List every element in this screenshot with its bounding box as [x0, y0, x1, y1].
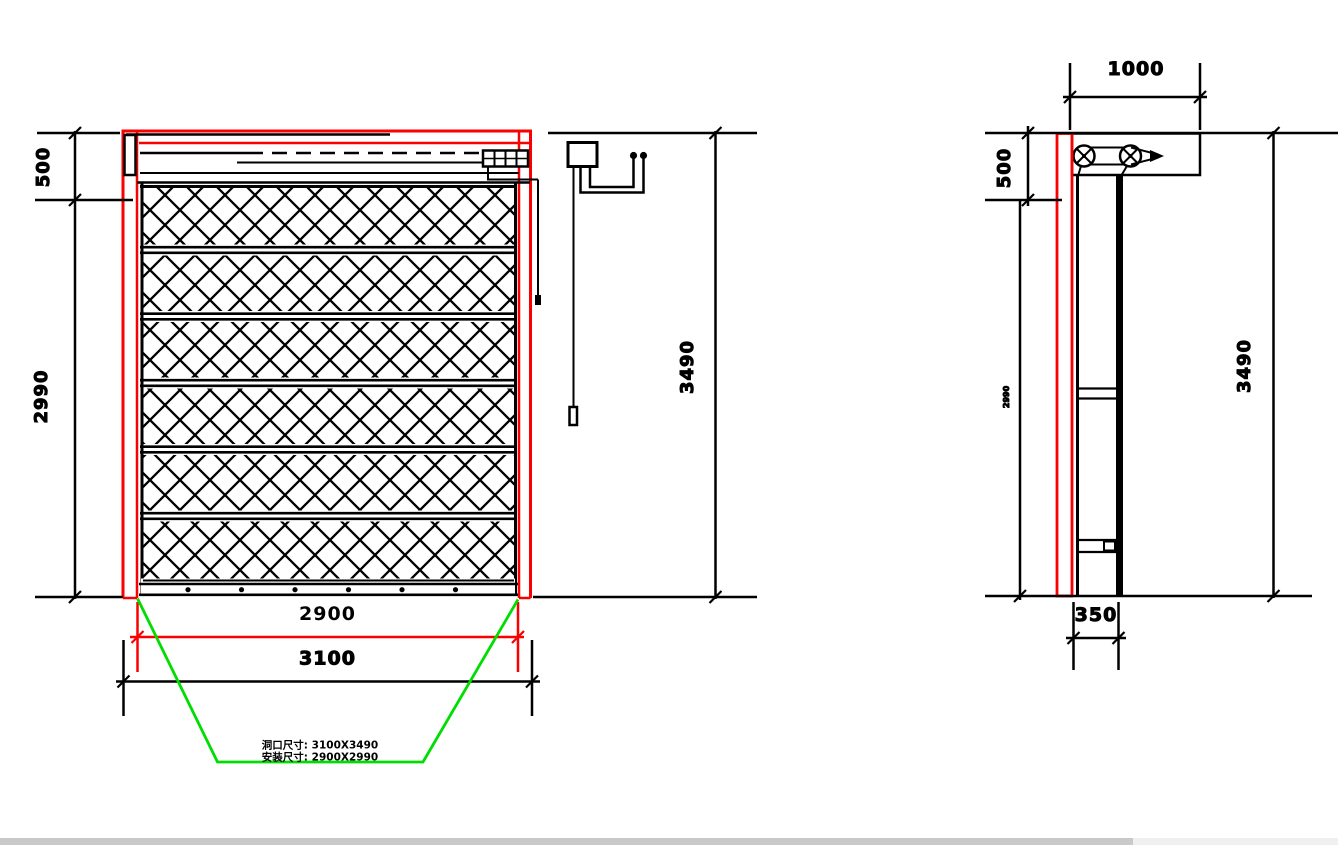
opening-width-dimension: 3100 [116, 640, 540, 716]
dim-side-body-height: 2990 [1002, 385, 1011, 408]
cord-handle [570, 407, 578, 425]
side-body-height-dimension: 2990 [1002, 200, 1026, 602]
side-box-width-dimension: 1000 [1063, 58, 1207, 130]
control-box-assembly [568, 143, 647, 426]
side-overall-height-dimension: 3490 [1234, 127, 1280, 602]
latch-block [1104, 542, 1115, 551]
annotation-note-line1: 洞口尺寸: 3100X3490 [262, 739, 378, 752]
side-vertical-members [1078, 166, 1128, 596]
left-end-bracket [125, 135, 136, 175]
dim-side-base-depth: 350 [1075, 604, 1118, 626]
front-left-dimensions: 500 2990 [31, 127, 133, 603]
side-view: 1000 500 2990 3490 350 [985, 58, 1338, 670]
dim-front-body-height: 2990 [31, 369, 52, 423]
dim-front-overall-height: 3490 [677, 340, 698, 394]
horizontal-scrollbar[interactable] [0, 838, 1338, 845]
scrollbar-thumb[interactable] [0, 838, 1133, 845]
front-overall-height-dimension: 3490 [533, 127, 757, 603]
cable-end [535, 295, 541, 305]
dim-shutter-width: 2900 [299, 603, 356, 625]
side-base-depth-dimension: 350 [1066, 602, 1126, 670]
dim-front-header-height: 500 [33, 147, 54, 188]
bottom-bar [139, 579, 518, 596]
terminal-dot [640, 152, 647, 159]
cad-drawing-viewport: 500 2990 3490 2900 [0, 0, 1338, 845]
dim-side-overall-height: 3490 [1234, 339, 1255, 393]
side-red-outline [1057, 134, 1072, 597]
annotation-note-line2: 安装尺寸: 2900X2990 [262, 751, 378, 764]
side-construction-lines [985, 133, 1338, 596]
dim-side-header-height: 500 [994, 148, 1015, 189]
dim-side-box-width: 1000 [1108, 58, 1165, 80]
side-header-height-dimension: 500 [985, 126, 1062, 206]
dim-opening-width: 3100 [299, 648, 356, 670]
terminal-dot [630, 152, 637, 159]
control-box [568, 143, 597, 167]
front-view: 500 2990 3490 2900 [31, 127, 757, 764]
grille-curtain [139, 183, 518, 595]
